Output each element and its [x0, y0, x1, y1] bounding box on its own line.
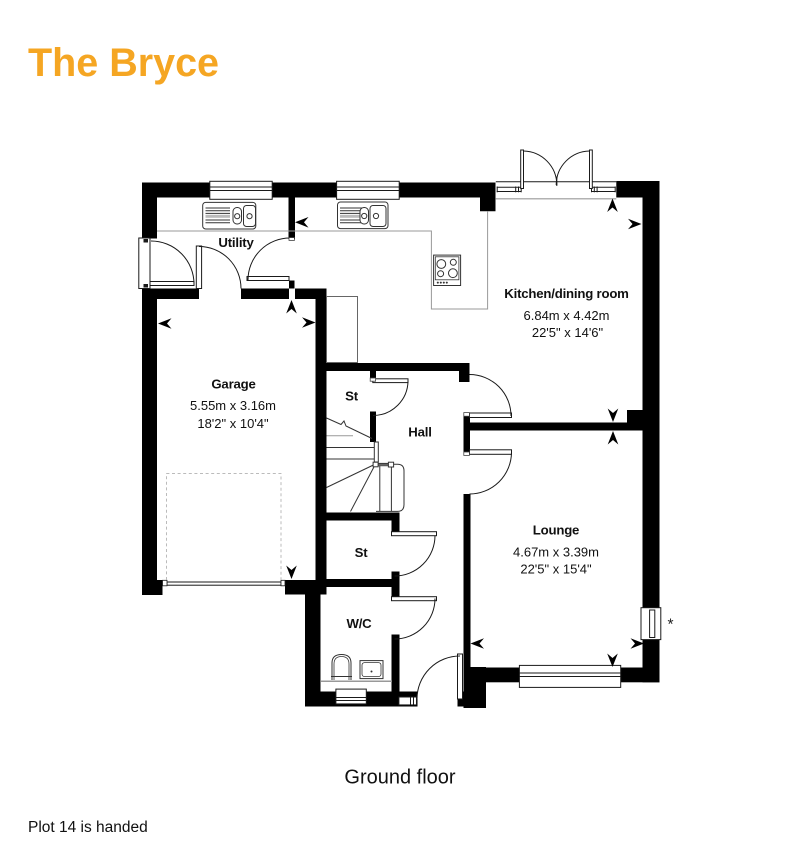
svg-text:Lounge: Lounge [533, 523, 579, 538]
svg-text:4.67m x 3.39m: 4.67m x 3.39m [513, 545, 599, 560]
svg-text:Plot 14 is handed: Plot 14 is handed [28, 819, 148, 836]
svg-text:22'5" x 15'4": 22'5" x 15'4" [520, 562, 592, 577]
svg-text:Kitchen/dining room: Kitchen/dining room [504, 286, 628, 301]
svg-text:The Bryce: The Bryce [28, 41, 219, 85]
svg-text:W/C: W/C [346, 616, 372, 631]
svg-text:Utility: Utility [218, 235, 254, 250]
svg-text:Garage: Garage [211, 377, 255, 392]
svg-text:*: * [668, 617, 674, 634]
svg-text:St: St [355, 545, 369, 560]
svg-text:5.55m x 3.16m: 5.55m x 3.16m [190, 398, 276, 413]
svg-text:Hall: Hall [408, 425, 431, 440]
svg-text:6.84m x 4.42m: 6.84m x 4.42m [524, 308, 610, 323]
svg-text:18'2" x 10'4": 18'2" x 10'4" [197, 416, 269, 431]
svg-text:St: St [345, 389, 359, 404]
svg-text:22'5" x 14'6": 22'5" x 14'6" [532, 325, 604, 340]
svg-text:Ground floor: Ground floor [344, 767, 456, 789]
